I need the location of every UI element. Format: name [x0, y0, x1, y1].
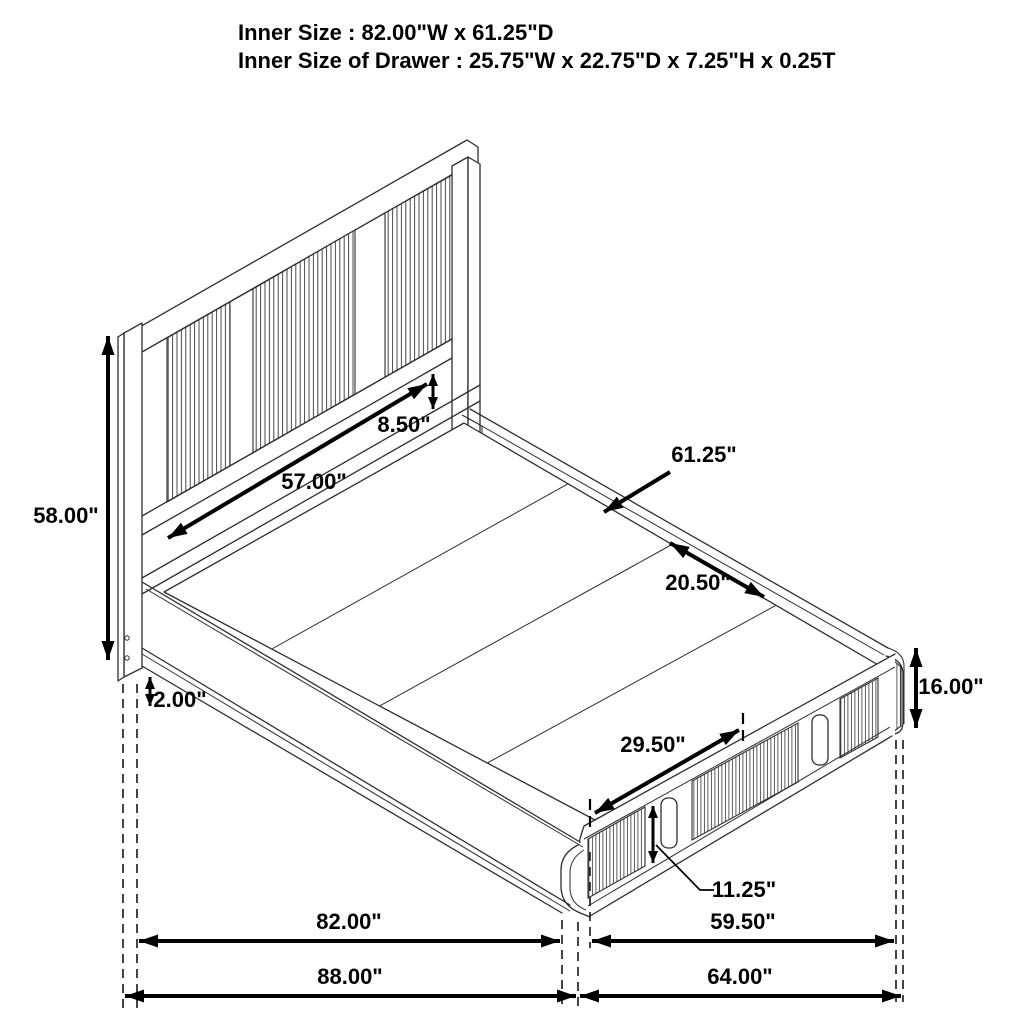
headboard-slat-panel-2 — [253, 230, 355, 453]
dim-label-opening-height: 8.50" — [377, 412, 430, 437]
dim-foot-inner-width: 59.50" — [592, 909, 894, 941]
dim-label-inner-depth: 61.25" — [671, 442, 736, 467]
headboard-right-post — [452, 157, 468, 451]
dim-inner-depth: 61.25" — [604, 442, 737, 512]
headboard-slat-panel-3 — [385, 175, 452, 377]
header-line-2: Inner Size of Drawer : 25.75"W x 22.75"D… — [238, 48, 836, 73]
diagram-canvas: 58.00" 57.00" 8.50" 61.25" 20.50" 16.00" — [0, 0, 1024, 1024]
dim-label-inner-length: 82.00" — [316, 909, 381, 934]
dim-label-headboard-height: 58.00" — [33, 503, 98, 528]
dim-label-drawer-width: 29.50" — [620, 732, 685, 757]
dim-label-base-height: 16.00" — [918, 674, 983, 699]
bed-dimension-diagram: 58.00" 57.00" 8.50" 61.25" 20.50" 16.00" — [0, 0, 1024, 1024]
headboard-plain-panel-1 — [230, 289, 253, 466]
headboard-left-post — [124, 323, 142, 677]
dim-inner-length: 82.00" — [139, 909, 560, 941]
dim-overall-length: 88.00" — [125, 964, 576, 996]
dim-label-opening-width: 57.00" — [281, 469, 346, 494]
dim-label-foot-inner-width: 59.50" — [710, 909, 775, 934]
dim-label-overall-length: 88.00" — [317, 964, 382, 989]
corner-join — [580, 826, 585, 842]
dim-headboard-height: 58.00" — [33, 336, 108, 660]
foot-left-corner-post — [561, 845, 590, 917]
dim-label-overall-width: 64.00" — [707, 964, 772, 989]
headboard-slat-panel-1 — [167, 302, 230, 502]
headboard-left-post-side — [118, 333, 124, 681]
headboard-right-post-side — [468, 157, 480, 449]
header: Inner Size : 82.00"W x 61.25"D Inner Siz… — [238, 20, 836, 73]
foot-left-corner-inner — [570, 850, 586, 910]
dim-label-panel-spacing: 20.50" — [665, 570, 730, 595]
dim-label-floor-clearance: 2.00" — [153, 687, 206, 712]
dim-base-height: 16.00" — [916, 648, 984, 728]
dim-overall-width: 64.00" — [580, 964, 901, 996]
dim-label-drawer-height: 11.25" — [712, 877, 776, 902]
headboard-plain-panel-2 — [355, 213, 385, 394]
header-line-1: Inner Size : 82.00"W x 61.25"D — [238, 20, 554, 45]
